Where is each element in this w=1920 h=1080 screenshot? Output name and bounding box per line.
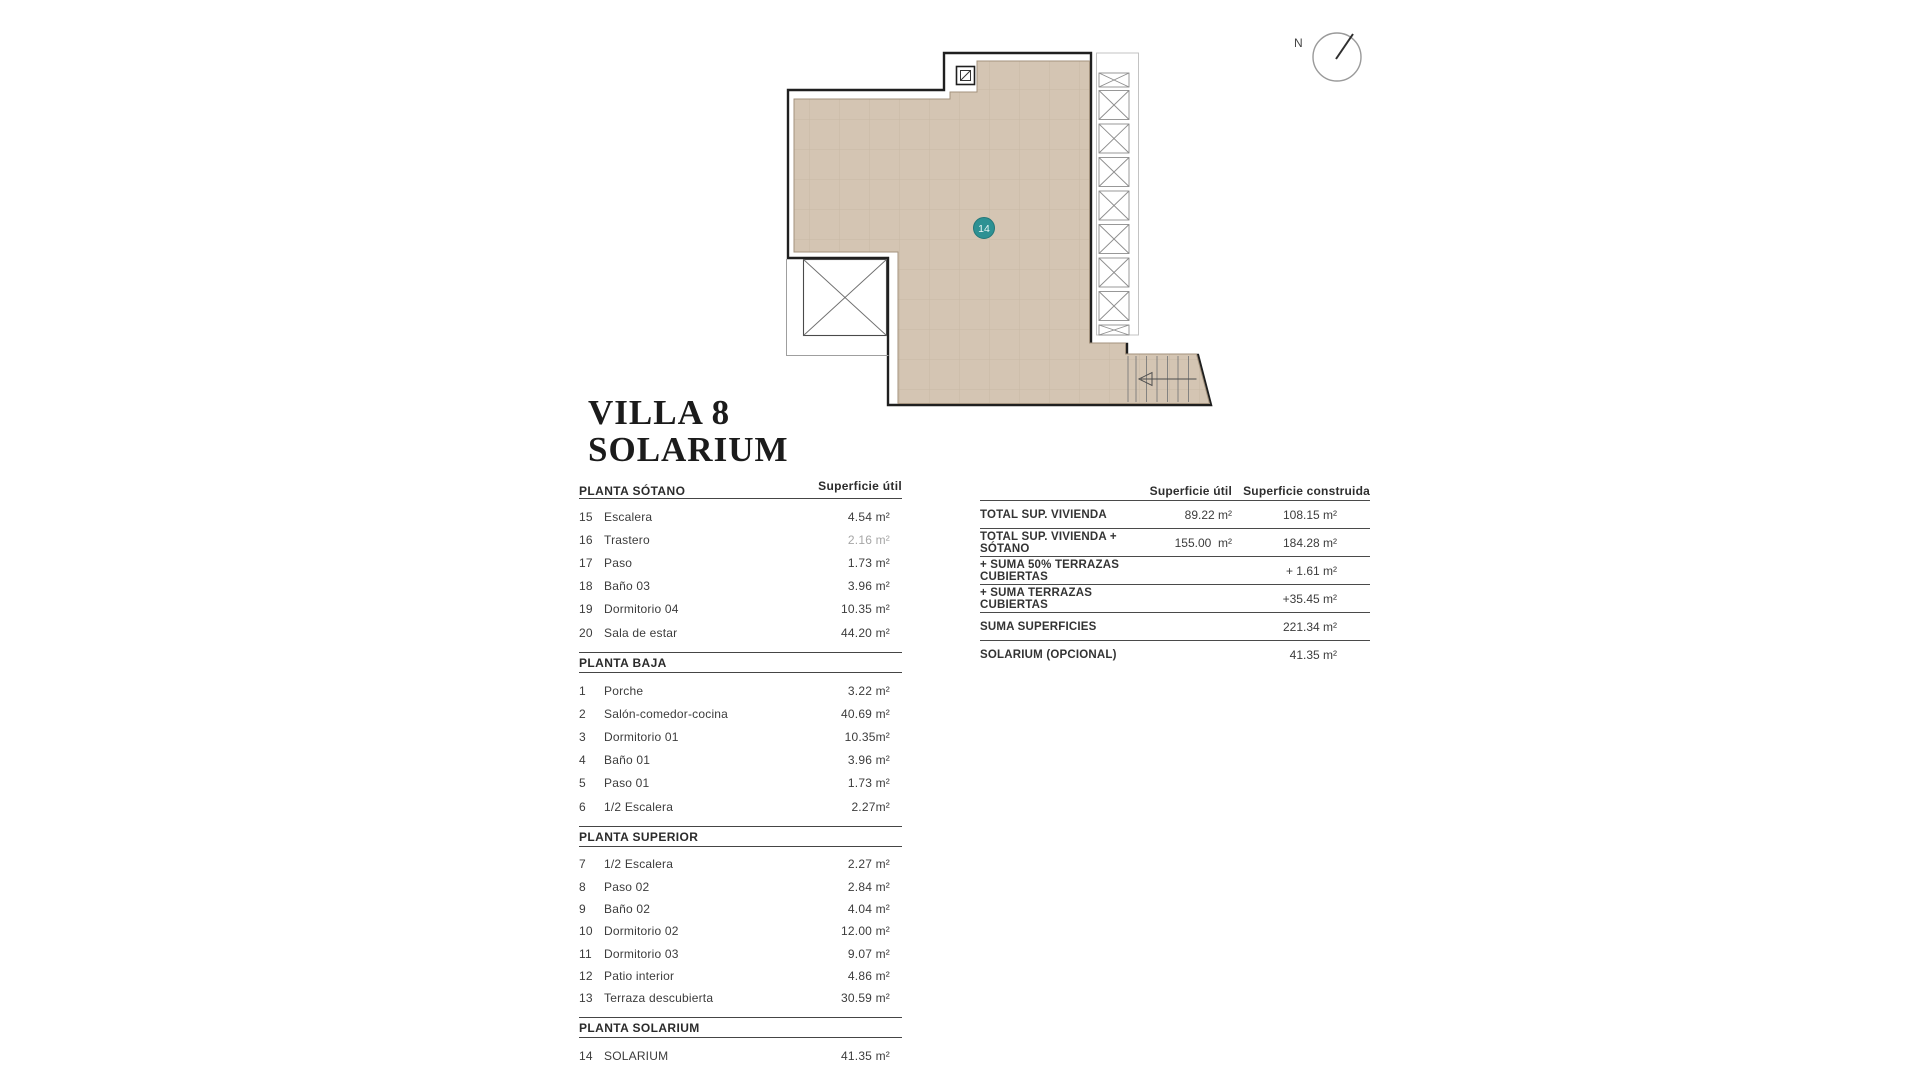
section-title: PLANTA BAJA <box>579 656 667 670</box>
col-header-superficie-util: Superficie útil <box>1120 484 1232 498</box>
table-row: 17Paso1.73 m² <box>579 551 902 574</box>
section-planta-superior: PLANTA SUPERIOR 71/2 Escalera2.27 m² 8Pa… <box>579 827 902 1018</box>
table-row: 4Baño 013.96 m² <box>579 749 902 772</box>
skylight-icon <box>957 67 975 85</box>
totals-table: Superficie útil Superficie construida TO… <box>980 476 1370 668</box>
table-row: SOLARIUM (OPCIONAL) 41.35 m² <box>980 641 1370 668</box>
table-row: 3Dormitorio 0110.35m² <box>579 726 902 749</box>
compass-icon: N <box>1294 33 1361 81</box>
floorplan-sheet: 14 N VILLA 8 SOLARIUM PLANTA SÓTANO Supe… <box>0 0 1920 1080</box>
col-header-superficie-construida: Superficie construida <box>1232 484 1370 498</box>
section-title: PLANTA SOLARIUM <box>579 1021 700 1035</box>
section-title: PLANTA SÓTANO <box>579 484 685 498</box>
section-header-row: PLANTA SUPERIOR <box>579 827 902 846</box>
solarium-floor <box>794 61 1210 404</box>
table-row: TOTAL SUP. VIVIENDA 89.22 m² 108.15 m² <box>980 501 1370 528</box>
table-row: TOTAL SUP. VIVIENDA + SÓTANO 155.00 m² 1… <box>980 529 1370 556</box>
table-row: 20Sala de estar44.20 m² <box>579 621 902 644</box>
pergola-strip <box>1097 53 1139 335</box>
table-row: 8Paso 022.84 m² <box>579 876 902 898</box>
table-row: 12Patio interior4.86 m² <box>579 965 902 987</box>
section-planta-sotano: PLANTA SÓTANO Superficie útil 15Escalera… <box>579 478 902 653</box>
table-row: 1Porche3.22 m² <box>579 679 902 702</box>
table-row: 18Baño 033.96 m² <box>579 575 902 598</box>
table-row: 9Baño 024.04 m² <box>579 898 902 920</box>
table-row: 13Terraza descubierta30.59 m² <box>579 987 902 1009</box>
table-row: + SUMA TERRAZAS CUBIERTAS +35.45 m² <box>980 585 1370 612</box>
page-title: VILLA 8 SOLARIUM <box>588 394 789 468</box>
table-row: 15Escalera4.54 m² <box>579 505 902 528</box>
table-row: + SUMA 50% TERRAZAS CUBIERTAS + 1.61 m² <box>980 557 1370 584</box>
totals-header-row: Superficie útil Superficie construida <box>980 476 1370 500</box>
table-row: 5Paso 011.73 m² <box>579 772 902 795</box>
area-column-header: Superficie útil <box>818 479 902 493</box>
section-header-row: PLANTA BAJA <box>579 653 902 672</box>
table-row: 10Dormitorio 0212.00 m² <box>579 920 902 942</box>
stair-void <box>804 260 887 336</box>
compass-north-label: N <box>1294 36 1303 50</box>
table-row: 14SOLARIUM41.35 m² <box>579 1044 902 1067</box>
floor-plan: 14 N <box>760 10 1390 430</box>
table-row: 2Salón-comedor-cocina40.69 m² <box>579 702 902 725</box>
table-row: 71/2 Escalera2.27 m² <box>579 853 902 875</box>
table-row: 19Dormitorio 0410.35 m² <box>579 598 902 621</box>
table-row: 11Dormitorio 039.07 m² <box>579 942 902 964</box>
page-title-line2: SOLARIUM <box>588 431 789 468</box>
page-title-line1: VILLA 8 <box>588 394 789 431</box>
section-title: PLANTA SUPERIOR <box>579 830 698 844</box>
table-row: SUMA SUPERFICIES 221.34 m² <box>980 613 1370 640</box>
section-planta-baja: PLANTA BAJA 1Porche3.22 m² 2Salón-comedo… <box>579 653 902 827</box>
svg-text:14: 14 <box>978 223 990 235</box>
rooms-table: PLANTA SÓTANO Superficie útil 15Escalera… <box>579 478 902 1076</box>
section-header-row: PLANTA SÓTANO Superficie útil <box>579 478 902 498</box>
table-row: 16Trastero2.16 m² <box>579 528 902 551</box>
unit-badge: 14 <box>974 218 995 239</box>
section-planta-solarium: PLANTA SOLARIUM 14SOLARIUM41.35 m² <box>579 1018 902 1075</box>
table-row: 61/2 Escalera2.27m² <box>579 795 902 818</box>
section-header-row: PLANTA SOLARIUM <box>579 1018 902 1037</box>
